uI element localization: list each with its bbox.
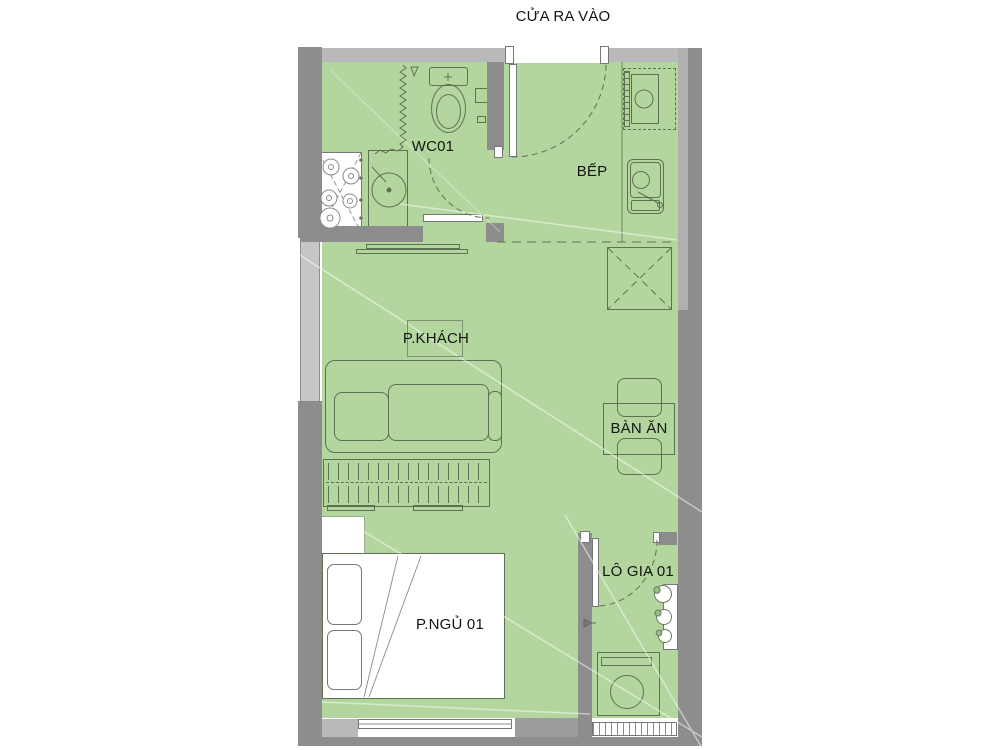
wall-left-lower	[298, 401, 322, 737]
tv-screen	[366, 244, 460, 249]
entrance-door-leaf	[509, 64, 517, 157]
plant-shelf	[663, 584, 678, 650]
console-foot-right	[413, 505, 463, 511]
entrance-jamb-left	[505, 46, 514, 64]
loggia-railing	[592, 722, 677, 736]
vanity-counter	[368, 150, 408, 234]
sofa-chaise-cushion	[334, 392, 389, 441]
wall-left-upper	[298, 47, 322, 238]
technical-shaft	[318, 152, 362, 233]
kitchen-sink-drainboard	[631, 200, 660, 211]
console-mid-line	[326, 482, 487, 483]
room-label-living: P.KHÁCH	[398, 330, 474, 348]
toilet-bowl-inner	[436, 94, 461, 129]
window-left	[300, 238, 320, 401]
room-label-bedroom: P.NGỦ 01	[400, 616, 500, 634]
wall-wc-corner	[486, 223, 504, 242]
sofa-armrest	[488, 391, 502, 441]
window-sill-left	[322, 719, 358, 737]
window-sill-right	[515, 718, 578, 737]
room-label-dining: BÀN ĂN	[603, 420, 675, 438]
pillow-top	[327, 564, 362, 625]
cooktop-inner	[631, 74, 659, 124]
loggia-jamb-left	[580, 531, 590, 543]
room-label-wc: WC01	[403, 138, 463, 156]
wall-top-right	[609, 48, 678, 62]
bedroom-window-glazing	[358, 719, 512, 729]
entrance-jamb-right	[600, 46, 609, 64]
kitchen-sink-basin	[630, 162, 661, 198]
room-label-loggia: LÔ GIA 01	[598, 563, 678, 581]
loggia-jamb-right	[653, 532, 660, 543]
sofa-seat-cushion	[388, 384, 489, 441]
wall-top-left	[322, 48, 505, 62]
tv-base	[356, 249, 468, 254]
room-label-kitchen: BẾP	[562, 163, 622, 181]
wc-jamb	[494, 146, 503, 158]
wall-wc-bottom	[300, 226, 423, 242]
floor-plan: CỬA RA VÀO WC01 BẾP P.KHÁCH BÀN ĂN P.NGỦ…	[0, 0, 1000, 750]
towel-hook	[477, 116, 486, 123]
wc-door-leaf	[423, 214, 483, 222]
pillow-bottom	[327, 630, 362, 690]
console-hatch-bottom	[328, 486, 485, 503]
washing-machine-panel	[601, 657, 652, 666]
wall-bottom	[298, 737, 702, 746]
tv-console	[323, 459, 490, 507]
washing-machine-drum	[610, 675, 644, 709]
console-foot-left	[327, 505, 375, 511]
kitchen-cabinet-cross-box	[607, 247, 672, 310]
wall-loggia-divider	[578, 533, 592, 737]
console-hatch-top	[328, 463, 485, 480]
entrance-opening	[513, 46, 601, 63]
wall-right-inner-face	[678, 48, 688, 310]
wall-loggia-stub	[658, 532, 677, 545]
entrance-label: CỬA RA VÀO	[438, 8, 688, 26]
nightstand	[321, 516, 365, 554]
wall-wc-right	[487, 62, 504, 150]
cooktop-side-rack	[624, 71, 630, 127]
living-label-box: P.KHÁCH	[407, 320, 463, 357]
